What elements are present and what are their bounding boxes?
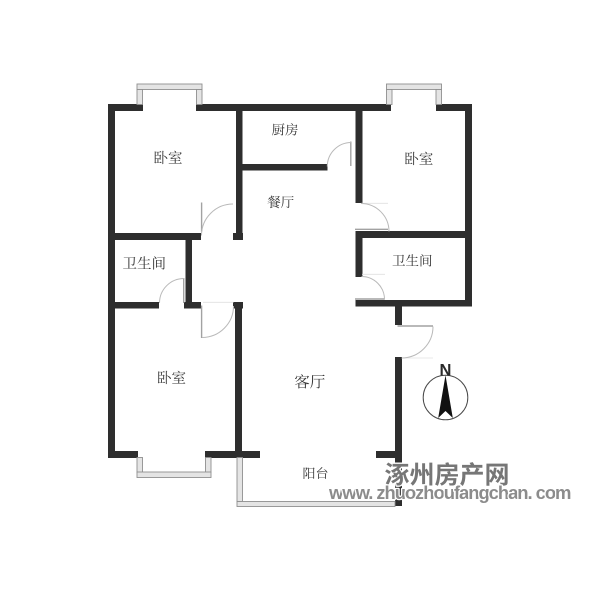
svg-text:N: N bbox=[440, 362, 452, 380]
svg-text:www. zhuozhoufangchan. com: www. zhuozhoufangchan. com bbox=[328, 482, 572, 503]
